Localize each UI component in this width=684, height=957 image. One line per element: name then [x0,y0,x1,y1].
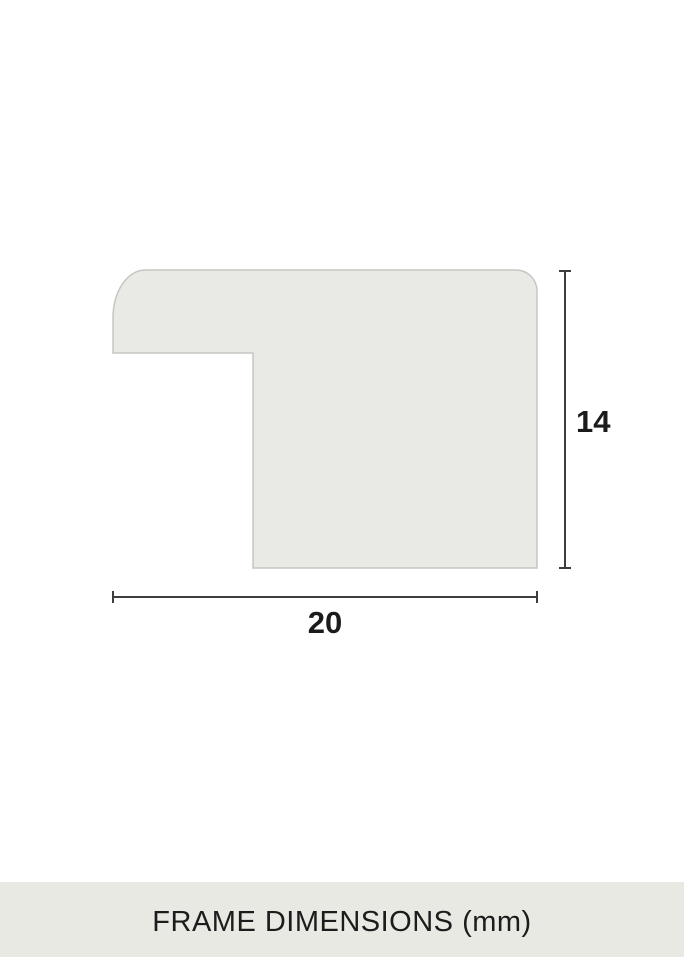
frame-profile-shape [113,270,537,568]
caption-text: FRAME DIMENSIONS (mm) [152,906,531,939]
width-dimension-label: 20 [308,605,342,640]
height-dimension-label: 14 [576,404,611,439]
frame-dimensions-diagram: 14 20 [0,0,684,882]
height-dimension-line [559,271,571,568]
width-dimension-line [113,591,537,603]
caption-bar: FRAME DIMENSIONS (mm) [0,882,684,957]
page: 14 20 FRAME DIMENSIONS (mm) [0,0,684,957]
